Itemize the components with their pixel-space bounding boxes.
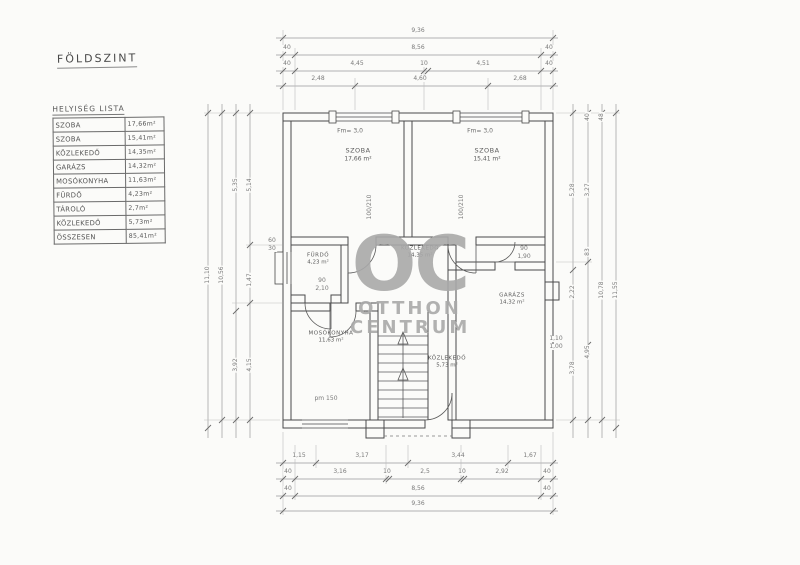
- table-row: TÁROLÓ2,7m²: [54, 201, 165, 216]
- room-area: 15,41m²: [125, 131, 164, 145]
- table-row: MOSÓKONYHA11,63m²: [54, 173, 165, 188]
- room-area: 4,23m²: [126, 187, 165, 201]
- dim-label: 10: [457, 469, 467, 475]
- dim-label: 3,17: [354, 453, 369, 459]
- dim-label: 3,44: [450, 453, 465, 459]
- table-row: ÖSSZESEN85,41m²: [54, 229, 165, 244]
- table-row: SZOBA15,41m²: [53, 131, 164, 146]
- room-label-mosokonyha: MOSÓKONYHA 11,63 m²: [309, 331, 354, 346]
- dim-label: 4,15: [247, 357, 253, 372]
- room-area: 14,35m²: [125, 145, 164, 159]
- dim-label: 3,92: [233, 357, 239, 372]
- dim-label: 5,28: [570, 182, 576, 197]
- dim-label: 1,10: [548, 336, 563, 342]
- dim-label: 2,92: [494, 469, 509, 475]
- dim-label: 4,60: [412, 76, 427, 82]
- dim-label: 2,22: [570, 284, 576, 299]
- dim-label: 4,95: [585, 344, 591, 359]
- dim-label: 90: [519, 246, 529, 252]
- dim-label: 40: [585, 112, 591, 122]
- room-area: 85,41m²: [126, 229, 165, 243]
- dim-label: 48: [599, 112, 605, 122]
- dim-label: 2,48: [310, 76, 325, 82]
- dim-label: 5,35: [233, 177, 239, 192]
- dim-label: 40: [283, 469, 293, 475]
- room-area: 2,7m²: [126, 201, 165, 215]
- floorplan-sheet: FÖLDSZINT HELYISÉG LISTA SZOBA17,66m² SZ…: [0, 0, 800, 565]
- dim-label: 40: [542, 486, 552, 492]
- room-list: HELYISÉG LISTA SZOBA17,66m² SZOBA15,41m²…: [52, 95, 170, 244]
- dim-label: 1,15: [291, 453, 306, 459]
- dim-label: 11,10: [205, 265, 211, 284]
- room-label-furdo: FÜRDŐ 4,23 m²: [307, 253, 329, 268]
- room-name: KÖZLEKEDŐ: [54, 215, 126, 230]
- room-name: SZOBA: [53, 131, 125, 146]
- dim-label: pm 150: [313, 396, 338, 402]
- dim-label: 60: [267, 238, 277, 244]
- table-row: KÖZLEKEDŐ14,35m²: [53, 145, 164, 160]
- dim-label: 90: [317, 278, 327, 284]
- room-list-table: SZOBA17,66m² SZOBA15,41m² KÖZLEKEDŐ14,35…: [52, 116, 165, 244]
- room-name: TÁROLÓ: [54, 201, 126, 216]
- dim-label: 4,45: [349, 61, 364, 67]
- dim-label: 83: [585, 247, 591, 257]
- dim-label: 40: [282, 61, 292, 67]
- room-area: 14,32m²: [125, 159, 164, 173]
- room-area: 11,63m²: [126, 173, 165, 187]
- room-name: SZOBA: [53, 117, 125, 132]
- dim-label: 1,67: [522, 453, 537, 459]
- room-name: KÖZLEKEDŐ: [53, 145, 125, 160]
- dim-label: 3,27: [585, 182, 591, 197]
- dim-label: 8,56: [410, 45, 425, 51]
- dim-label: 1,47: [247, 272, 253, 287]
- dim-label: 2,5: [419, 469, 431, 475]
- dim-label: 40: [283, 486, 293, 492]
- floorplan-drawing: [0, 0, 800, 565]
- ceiling-height-szoba1: Fm= 3,0: [337, 128, 363, 135]
- dim-label: 5,14: [247, 177, 253, 192]
- room-name: ÖSSZESEN: [54, 229, 126, 244]
- dim-label: 40: [542, 469, 552, 475]
- dim-label: 4,51: [475, 61, 490, 67]
- dim-label: 100/210: [459, 194, 465, 221]
- dim-label: 3,78: [570, 360, 576, 375]
- dim-label: 8,56: [410, 486, 425, 492]
- dim-label: 40: [544, 61, 554, 67]
- dim-label: 40: [544, 45, 554, 51]
- dim-label: 40: [282, 45, 292, 51]
- table-row: FÜRDŐ4,23m²: [54, 187, 165, 202]
- dim-label: 11,55: [613, 280, 619, 299]
- room-name: GARÁZS: [53, 159, 125, 174]
- room-area: 5,73m²: [126, 215, 165, 229]
- dim-label: 9,36: [410, 501, 425, 507]
- dim-label: 1,00: [548, 344, 563, 350]
- room-area: 17,66m²: [125, 117, 164, 131]
- dim-label: 10,56: [219, 265, 225, 284]
- room-label-szoba1: SZOBA 17,66 m²: [344, 147, 371, 164]
- dim-label: 2,68: [512, 76, 527, 82]
- room-label-garazs: GARÁZS 14,32 m²: [499, 293, 525, 308]
- table-row: GARÁZS14,32m²: [53, 159, 164, 174]
- room-name: FÜRDŐ: [54, 187, 126, 202]
- room-label-kozlekedo: KÖZLEKEDŐ 14,35 m²: [401, 246, 439, 261]
- room-label-szoba2: SZOBA 15,41 m²: [473, 147, 500, 164]
- dim-label: 10: [419, 61, 429, 67]
- page-title: FÖLDSZINT: [57, 51, 138, 68]
- dim-label: 9,36: [410, 28, 425, 34]
- dim-label: 30: [267, 246, 277, 252]
- dim-label: 10: [382, 469, 392, 475]
- dim-label: 1,90: [516, 254, 531, 260]
- ceiling-height-szoba2: Fm= 3,0: [467, 128, 493, 135]
- room-label-kozlekedo2: KÖZLEKEDŐ 5,73 m²: [428, 356, 466, 371]
- dim-label: 100/210: [367, 194, 373, 221]
- dim-label: 3,16: [332, 469, 347, 475]
- dim-label: 2,10: [314, 286, 329, 292]
- room-name: MOSÓKONYHA: [54, 173, 126, 188]
- table-row: KÖZLEKEDŐ5,73m²: [54, 215, 165, 230]
- table-row: SZOBA17,66m²: [53, 117, 164, 132]
- dim-label: 10,78: [599, 280, 605, 299]
- room-list-header: HELYISÉG LISTA: [52, 104, 124, 116]
